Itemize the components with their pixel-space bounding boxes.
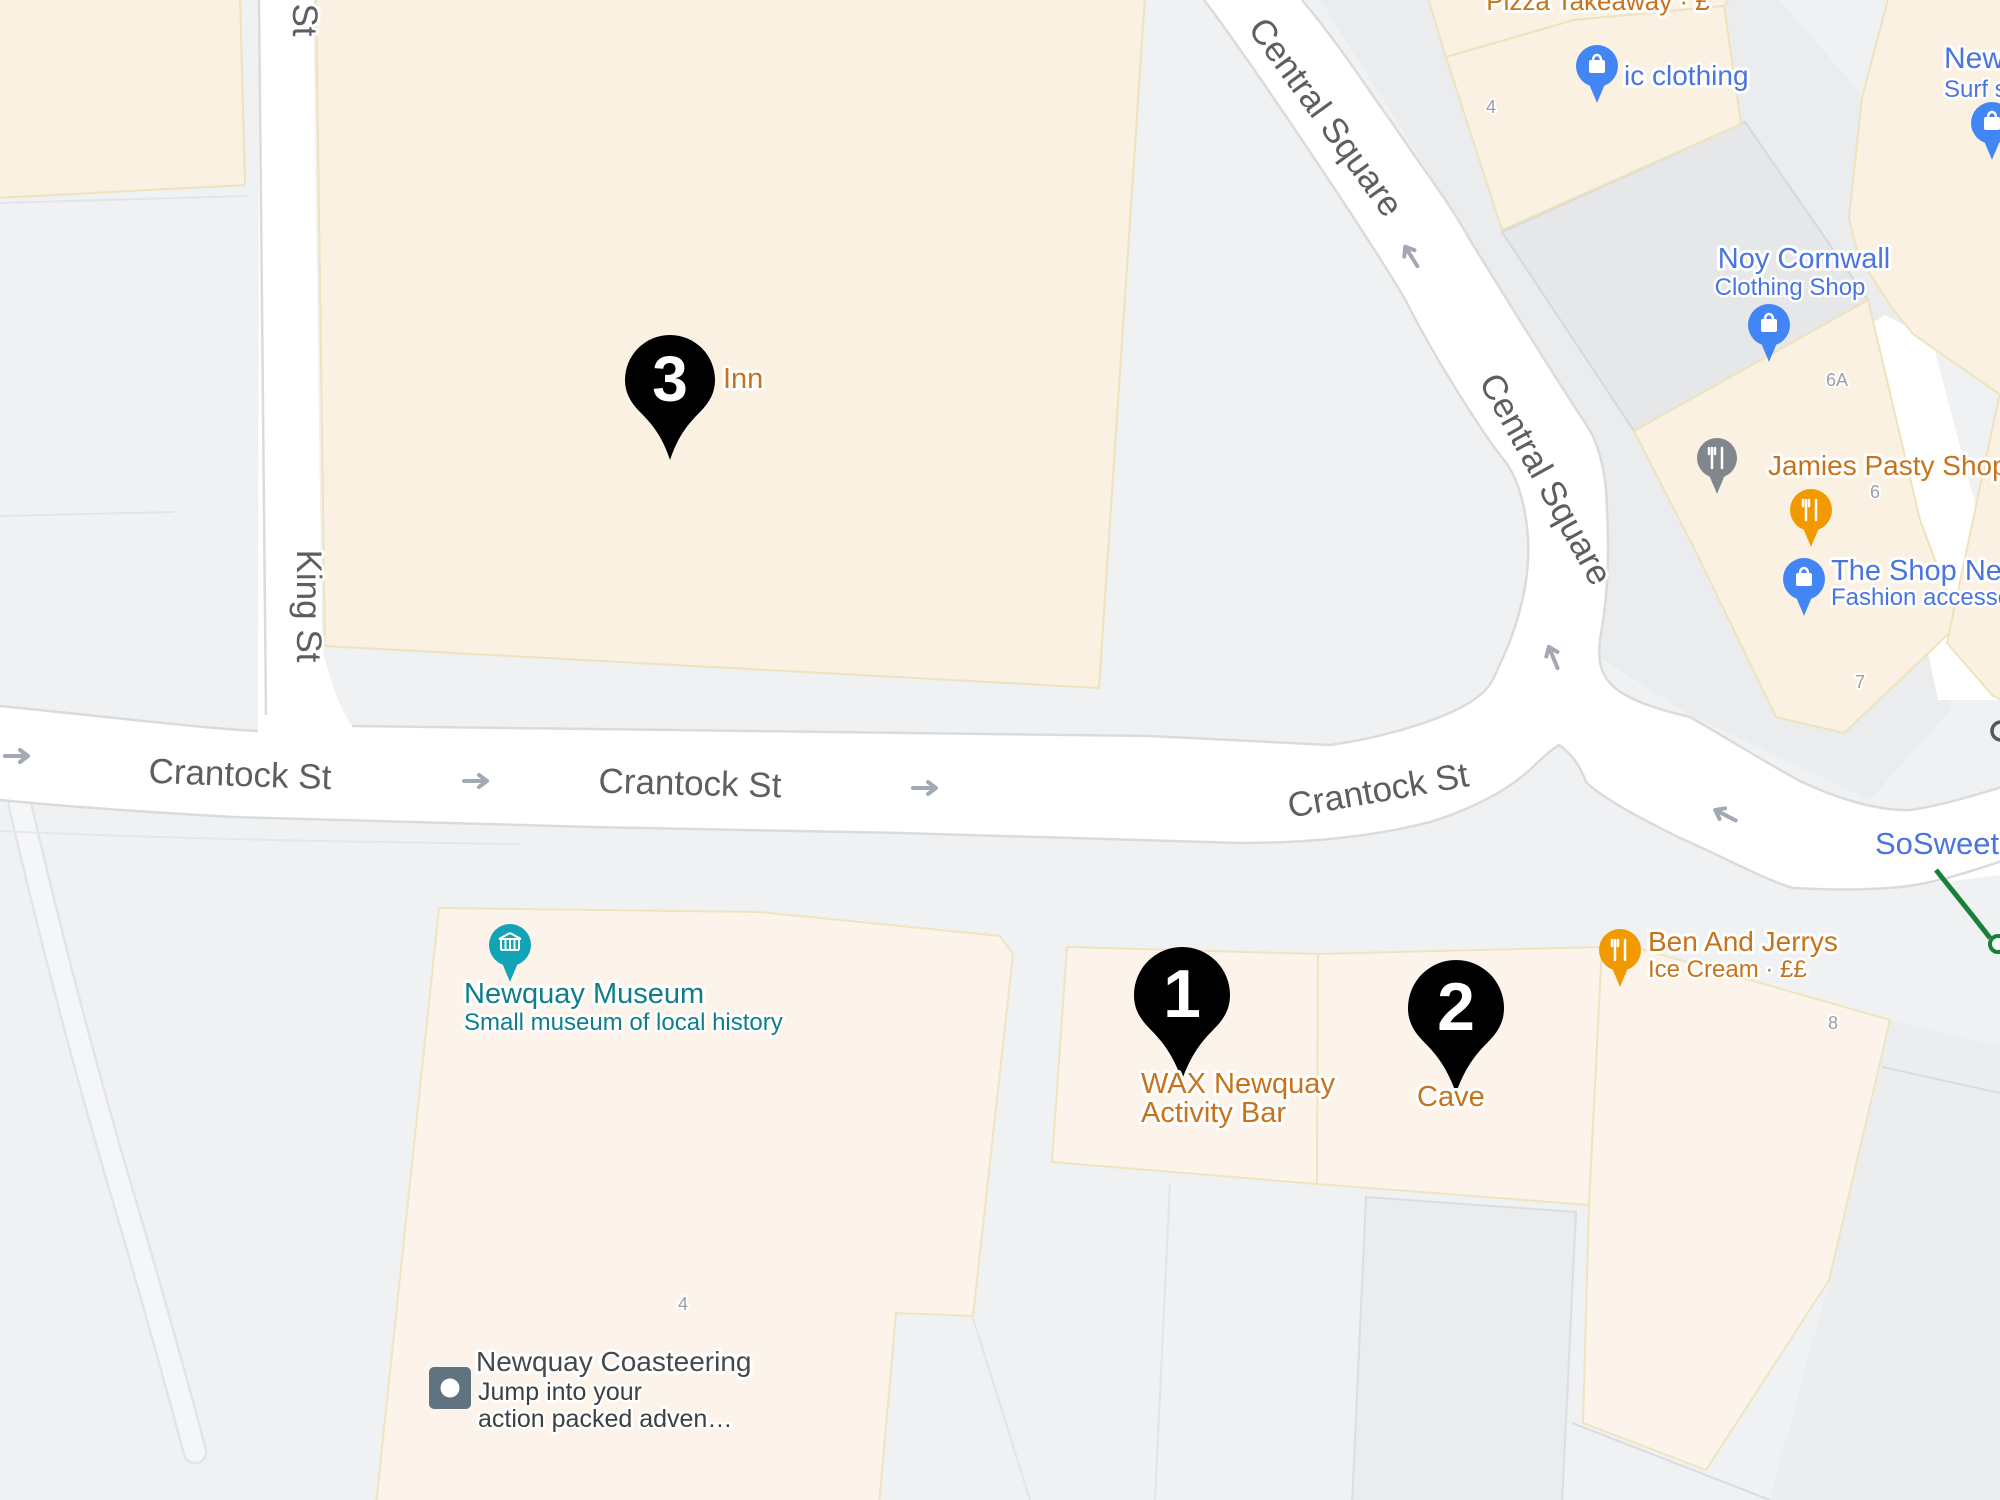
- svg-text:Fashion accessori: Fashion accessori: [1831, 584, 2000, 611]
- svg-text:King St: King St: [289, 550, 328, 663]
- svg-text:Small museum of local history: Small museum of local history: [464, 1009, 783, 1036]
- svg-text:Ice Cream · ££: Ice Cream · ££: [1648, 956, 1807, 983]
- svg-text:The Shop New: The Shop New: [1831, 555, 2000, 587]
- svg-text:St: St: [285, 3, 324, 36]
- svg-text:7: 7: [1855, 672, 1865, 692]
- svg-text:Ben And Jerrys: Ben And Jerrys: [1648, 926, 1838, 957]
- svg-text:SoSweet: SoSweet: [1875, 826, 1999, 861]
- svg-text:Newquay Coasteering: Newquay Coasteering: [476, 1346, 752, 1377]
- svg-text:action packed adven…: action packed adven…: [478, 1405, 732, 1433]
- svg-text:WAX Newquay: WAX Newquay: [1141, 1068, 1335, 1100]
- svg-text:Crantock St: Crantock St: [148, 752, 332, 797]
- svg-text:3: 3: [652, 343, 688, 415]
- svg-text:6: 6: [1870, 482, 1880, 502]
- svg-text:Newqu: Newqu: [1944, 42, 2000, 75]
- svg-text:Jamies Pasty Shop: Jamies Pasty Shop: [1768, 450, 2000, 481]
- svg-text:Clothing Shop: Clothing Shop: [1715, 274, 1866, 301]
- svg-text:6A: 6A: [1826, 370, 1848, 390]
- svg-text:Inn: Inn: [723, 363, 763, 395]
- svg-text:ic clothing: ic clothing: [1624, 60, 1749, 91]
- svg-text:1: 1: [1163, 956, 1201, 1032]
- svg-text:Noy Cornwall: Noy Cornwall: [1718, 243, 1890, 275]
- svg-text:Surf sh: Surf sh: [1944, 76, 2000, 103]
- svg-text:4: 4: [678, 1294, 688, 1314]
- svg-text:Newquay Museum: Newquay Museum: [464, 978, 704, 1010]
- svg-text:8: 8: [1828, 1013, 1838, 1033]
- svg-text:Jump into your: Jump into your: [478, 1378, 642, 1406]
- svg-text:Pizza Takeaway · £: Pizza Takeaway · £: [1486, 0, 1710, 16]
- svg-text:4: 4: [1486, 97, 1496, 117]
- svg-text:Crantock St: Crantock St: [598, 762, 782, 806]
- svg-text:Activity Bar: Activity Bar: [1141, 1097, 1286, 1129]
- svg-text:Cave: Cave: [1417, 1081, 1485, 1113]
- svg-text:2: 2: [1437, 969, 1475, 1045]
